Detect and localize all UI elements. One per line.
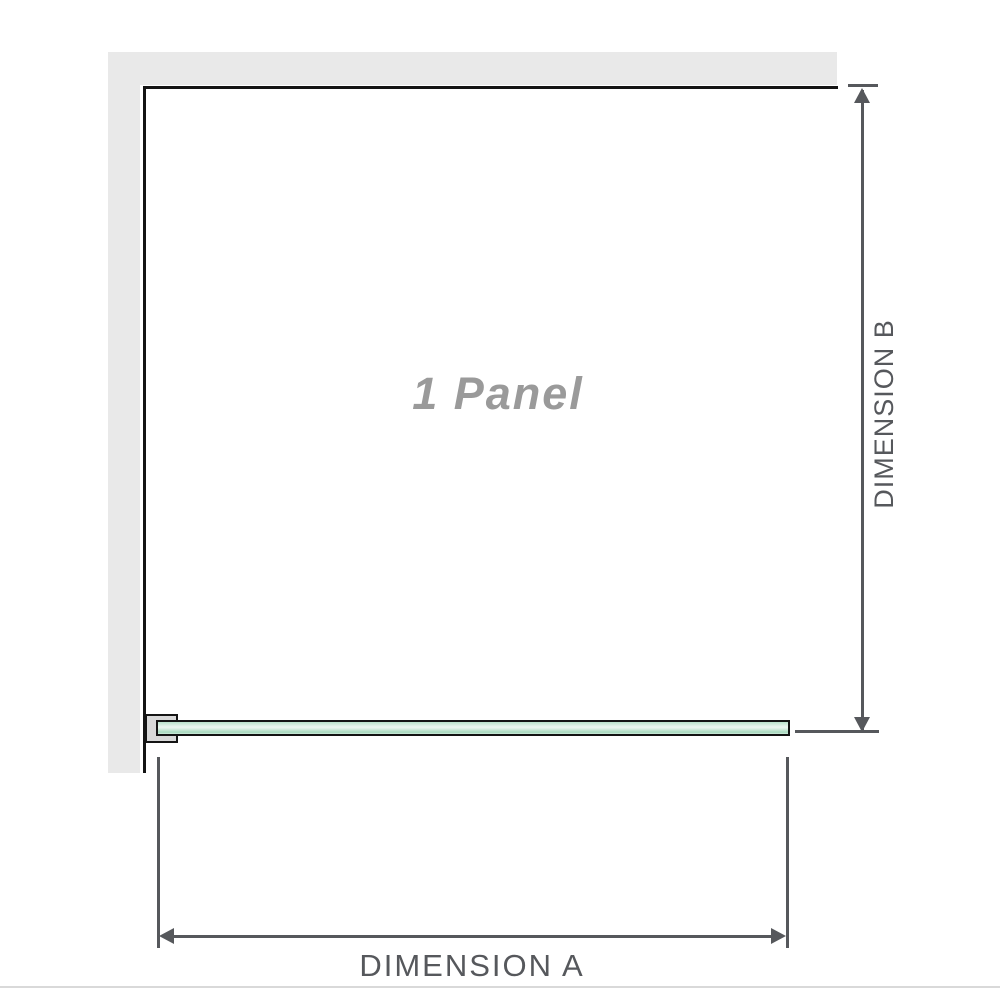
dimension-b-label: DIMENSION B <box>869 294 899 534</box>
dimension-a-extension-left <box>157 757 160 948</box>
panel-count-label: 1 Panel <box>298 368 698 420</box>
dimension-a-arrow-right-icon <box>771 928 786 944</box>
wall-top-band <box>108 52 837 85</box>
dimension-a-line <box>170 935 775 938</box>
dimension-a-extension-right <box>786 757 789 948</box>
glass-panel <box>156 720 790 736</box>
dimension-b-tick-top <box>848 84 878 87</box>
dimension-a-label: DIMENSION A <box>272 948 672 984</box>
dimension-b-arrow-down-icon <box>854 717 870 732</box>
wall-face-top-line <box>143 86 838 89</box>
dimension-a-arrow-left-icon <box>159 928 174 944</box>
wall-face-left-line <box>143 86 146 773</box>
dimension-b-arrow-up-icon <box>854 88 870 103</box>
dimension-b-line <box>861 90 864 730</box>
dimension-diagram: 1 Panel DIMENSION B DIMENSION A <box>0 0 1000 1000</box>
wall-left-band <box>108 52 140 773</box>
bottom-divider <box>0 986 1000 988</box>
